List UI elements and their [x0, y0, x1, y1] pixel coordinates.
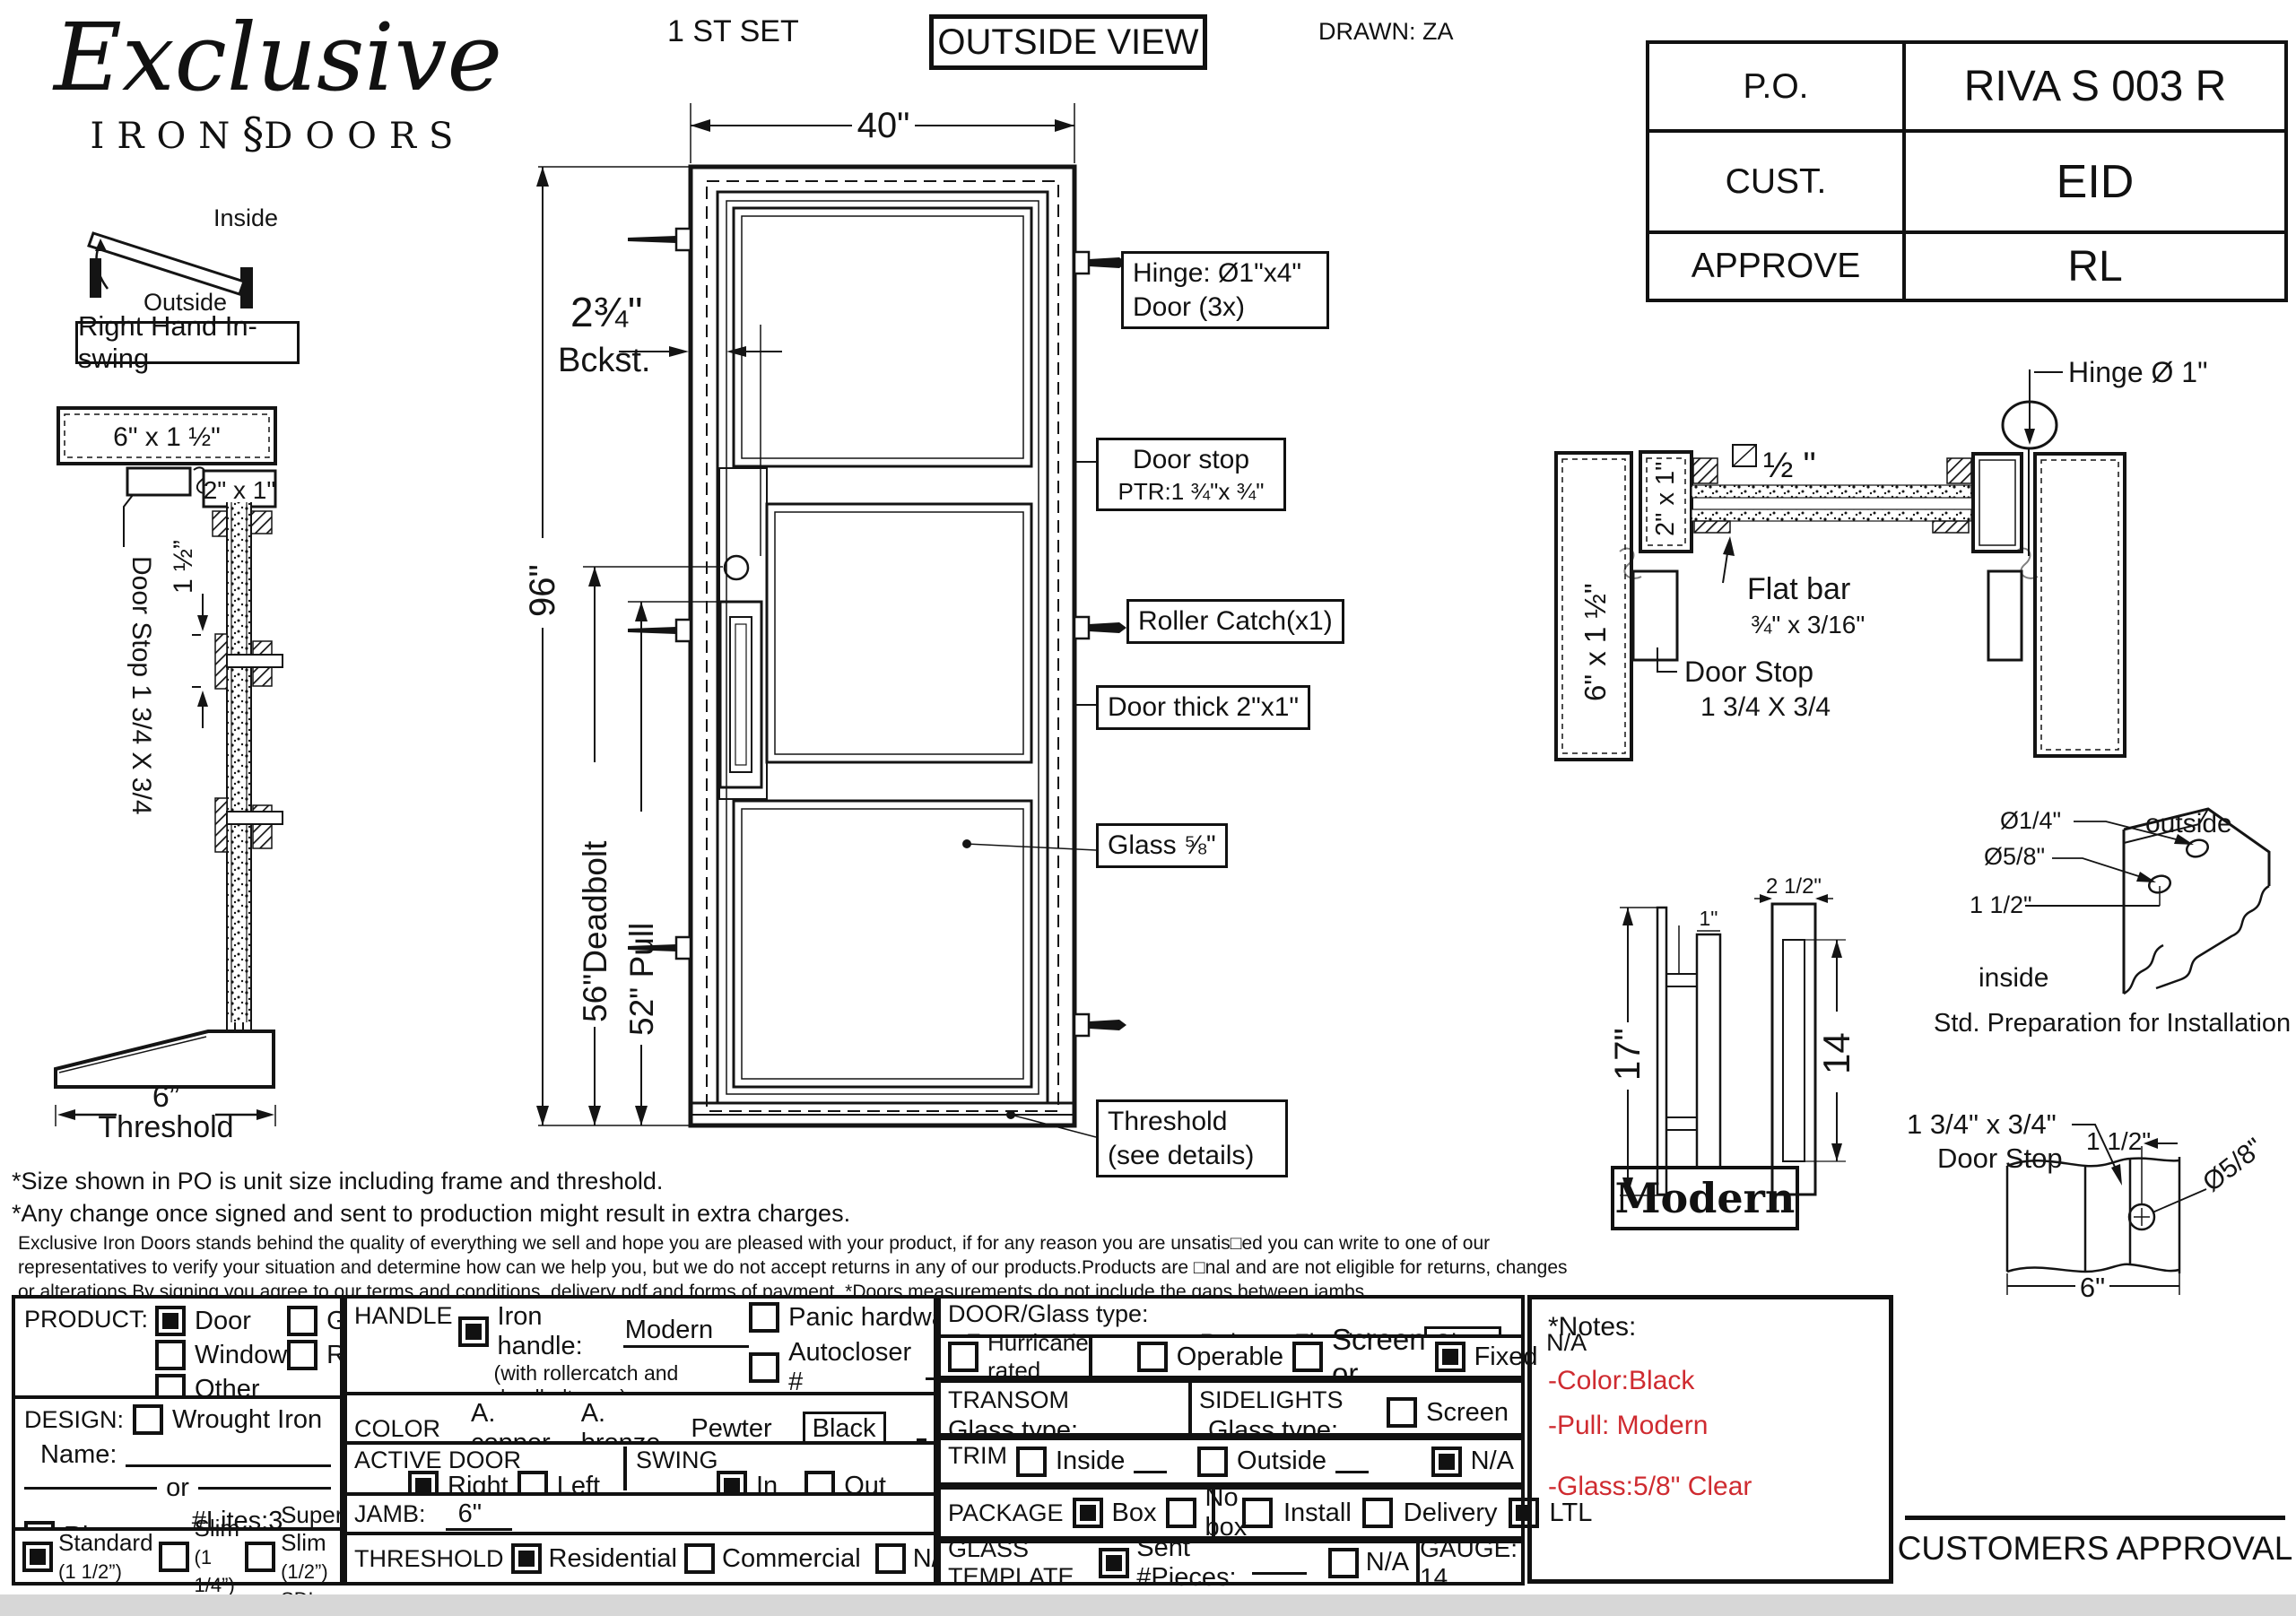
size-standard-label: Standard(1 1/2”) — [58, 1529, 153, 1585]
prep-dia2-label: Ø5/8" — [1984, 843, 2045, 870]
design-wrought-checkbox[interactable] — [133, 1404, 163, 1435]
handle-section: HANDLE Iron handle: Modern (with rollerc… — [344, 1295, 937, 1395]
design-name-label: Name: — [40, 1440, 117, 1470]
stop-width-dim: 6" — [2080, 1272, 2105, 1303]
prep-outside-label: outside — [2145, 809, 2232, 838]
glass-template-label: GLASS TEMPLATE — [948, 1535, 1091, 1591]
or-divider-left — [24, 1487, 157, 1490]
threshold-width-label: 6” — [152, 1080, 179, 1114]
disclaimer-paragraph: Exclusive Iron Doors stands behind the q… — [18, 1232, 1568, 1305]
note-color: -Color:Black — [1548, 1366, 1873, 1396]
jamb-value[interactable]: 6" — [446, 1499, 512, 1531]
logo-doors-text: DOORS — [264, 116, 465, 157]
handle-plate-width-dim: 2 1/2" — [1766, 874, 1822, 899]
swing-inside-label: Inside — [213, 204, 278, 231]
door-stop-rotated-label: Door Stop 1 3/4 X 3/4 — [126, 556, 156, 815]
prep-dia1-label: Ø1/4" — [2000, 807, 2061, 834]
handle-height-dim: 17" — [1608, 1028, 1648, 1081]
package-label: PACKAGE — [948, 1499, 1064, 1527]
hinge-pins — [1074, 252, 1126, 1036]
package-section: PACKAGE Box No box Install Delivery LTL — [937, 1486, 1525, 1540]
template-na-checkbox[interactable] — [1328, 1548, 1359, 1578]
transom-glass-blank[interactable] — [1078, 1414, 1177, 1438]
size-superslim-checkbox[interactable] — [245, 1542, 275, 1572]
prep-offset-label: 1 1/2" — [1970, 891, 2032, 918]
product-gate-checkbox[interactable] — [287, 1306, 317, 1336]
trim-na-label: N/A — [1471, 1447, 1514, 1476]
or-label: or — [166, 1473, 189, 1503]
template-sent-blank[interactable] — [1252, 1551, 1307, 1575]
logo-fleuron-icon: § — [242, 109, 264, 159]
or-divider-right — [198, 1487, 331, 1490]
active-door-swing-section: ACTIVE DOOR Right Left SWING In Out — [344, 1441, 937, 1496]
trim-section: TRIM Inside Outside N/A — [937, 1437, 1525, 1486]
trim-inside-checkbox[interactable] — [1016, 1447, 1047, 1477]
pull-height-dim: 52" Pull — [623, 923, 660, 1036]
package-install-label: Install — [1283, 1499, 1352, 1528]
door-width-dim: 40" — [857, 106, 910, 145]
trim-outside-checkbox[interactable] — [1197, 1447, 1228, 1477]
handle-iron-value[interactable]: Modern — [623, 1316, 749, 1348]
section-tube-label: 2" x 1" — [1651, 462, 1680, 536]
company-logo: Exclusive IRON§DOORS — [54, 9, 502, 159]
swing-diagram: Inside Outside — [89, 204, 278, 316]
cust-label: CUST. — [1649, 133, 1906, 230]
color-pewter-option[interactable]: Pewter — [691, 1414, 771, 1444]
page-bottom-edge — [0, 1594, 2296, 1616]
cross-section: 6" x 1 ½" 2" x 1" ½ " — [1556, 356, 2207, 760]
package-install-checkbox[interactable] — [1242, 1498, 1273, 1528]
logo-iron-text: IRON — [91, 116, 243, 157]
swing-caption: Right Hand In-swing — [75, 321, 300, 364]
template-sent-label: Sent #Pieces: — [1136, 1533, 1245, 1593]
threshold-commercial-checkbox[interactable] — [684, 1543, 715, 1574]
handle-slot-dim: 14 — [1815, 1032, 1857, 1074]
threshold-residential-checkbox[interactable] — [511, 1543, 542, 1574]
approve-label: APPROVE — [1649, 234, 1906, 299]
trim-inside-blank[interactable] — [1134, 1449, 1167, 1473]
frame-size-section: Standard(1 1/2”) Slim(1 1/4”) Super Slim… — [12, 1527, 344, 1586]
handle-autocloser-checkbox[interactable] — [749, 1352, 779, 1383]
color-other-blank[interactable] — [917, 1417, 926, 1441]
product-railing-checkbox[interactable] — [287, 1340, 317, 1370]
color-section: COLOR A. copper A. bronze Pewter Black — [344, 1392, 937, 1445]
sidelights-screen-label: Screen — [1426, 1398, 1509, 1428]
package-box-checkbox[interactable] — [1073, 1498, 1103, 1528]
threshold-caption: Threshold — [98, 1110, 233, 1144]
package-box-label: Box — [1112, 1499, 1157, 1528]
left-jamb-section: 6" x 1 ½" 2" x 1" 1 ½” — [56, 408, 283, 1144]
prep-inside-label: inside — [1979, 963, 2048, 993]
left-pins — [628, 229, 691, 959]
section-half-dim: ½ " — [1763, 446, 1816, 485]
backset-dim: 2¾" — [570, 289, 642, 335]
handle-detail: 17" 1" 2 1/2" 14 — [1608, 874, 1857, 1195]
logo-brand-text: Exclusive — [54, 9, 502, 107]
color-label: COLOR — [354, 1415, 440, 1443]
hurricane-label: Hurricane rated — [987, 1329, 1089, 1385]
threshold-residential-label: Residential — [549, 1544, 677, 1574]
table-row: APPROVE RL — [1649, 234, 2284, 299]
handle-iron-checkbox[interactable] — [458, 1316, 489, 1347]
deadbolt-height-dim: 56"Deadbolt — [577, 840, 613, 1022]
stop-dia-label: Ø5/8" — [2197, 1133, 2269, 1198]
product-label: PRODUCT: — [24, 1306, 148, 1404]
design-label: DESIGN: — [24, 1406, 124, 1434]
door-height-dim: 96" — [523, 564, 562, 617]
set-label: 1 ST SET — [667, 14, 799, 49]
prep-detail: Ø1/4" Ø5/8" 1 1/2" outside inside Std. P… — [1934, 807, 2291, 1038]
drawn-by-label: DRAWN: ZA — [1318, 18, 1454, 46]
threshold-na-checkbox[interactable] — [875, 1543, 906, 1574]
trim-outside-label: Outside — [1237, 1447, 1326, 1476]
package-delivery-label: Delivery — [1404, 1499, 1498, 1528]
door-thickness-callout: Door thick 2"x1" — [1096, 685, 1310, 730]
size-slim-label: Slim(1 1/4”) — [195, 1515, 240, 1598]
fixed-checkbox[interactable] — [1435, 1342, 1465, 1372]
outside-view-box: OUTSIDE VIEW — [929, 14, 1207, 70]
section-hinge-label: Hinge Ø 1" — [2068, 356, 2207, 388]
product-door-label: Door — [195, 1307, 251, 1336]
template-na-label: N/A — [1366, 1548, 1409, 1577]
stop-name-label: Door Stop — [1937, 1142, 2063, 1174]
threshold-callout: Threshold(see details) — [1096, 1099, 1288, 1177]
sidelights-screen-checkbox[interactable] — [1387, 1397, 1417, 1428]
package-nobox-checkbox[interactable] — [1166, 1498, 1196, 1528]
template-sent-checkbox[interactable] — [1099, 1548, 1129, 1578]
size-slim-checkbox[interactable] — [159, 1542, 189, 1572]
product-window-label: Window — [195, 1341, 287, 1370]
stop-size-label: 1 3/4" x 3/4" — [1907, 1108, 2057, 1140]
customer-signature-line[interactable] — [1905, 1516, 2285, 1520]
cust-value: EID — [1906, 155, 2284, 209]
stop-offset-dim: 1 1/2" — [2086, 1127, 2151, 1155]
door-stop-detail: 1 3/4" x 3/4" Door Stop 1 1/2" Ø5/8" 6" — [1907, 1108, 2269, 1303]
design-name-blank[interactable] — [126, 1443, 331, 1467]
threshold-commercial-label: Commercial — [722, 1544, 861, 1574]
jamb-size-label: 6" x 1 ½" — [113, 422, 221, 452]
hurricane-checkbox[interactable] — [948, 1342, 978, 1372]
flat-bar-label: Flat bar — [1747, 572, 1850, 606]
handle-autocloser-label: Autocloser # — [788, 1338, 917, 1397]
tube-size-label: 2" x 1" — [204, 476, 276, 504]
door-elevation: 40" 96" 56"Deadbolt 52" Pull 2¾" — [523, 103, 1126, 1137]
glass-callout: Glass ⅝" — [1096, 823, 1228, 868]
prep-caption: Std. Preparation for Installation — [1934, 1009, 2291, 1038]
section-stop-size: 1 3/4 X 3/4 — [1700, 692, 1831, 722]
handle-bar-width-dim: 1" — [1700, 907, 1718, 930]
hinge-callout: Hinge: Ø1"x4"Door (3x) — [1121, 251, 1329, 329]
po-info-table: P.O. RIVA S 003 R CUST. EID APPROVE RL — [1646, 40, 2288, 302]
size-standard-checkbox[interactable] — [22, 1542, 53, 1572]
trim-outside-blank[interactable] — [1335, 1449, 1369, 1473]
product-window-checkbox[interactable] — [155, 1340, 186, 1370]
table-row: P.O. RIVA S 003 R — [1649, 44, 2284, 133]
product-section: PRODUCT: Door Gate Window Railling Other — [12, 1295, 344, 1399]
product-door-checkbox[interactable] — [155, 1306, 186, 1336]
handle-panic-checkbox[interactable] — [749, 1302, 779, 1333]
approve-value: RL — [1906, 242, 2284, 291]
po-value: RIVA S 003 R — [1906, 62, 2284, 111]
glass-type-label: DOOR/Glass type: — [948, 1300, 1514, 1328]
transom-label: TRANSOM — [948, 1386, 1181, 1414]
table-row: CUST. EID — [1649, 133, 2284, 234]
disclaimer-line-2: *Any change once signed and sent to prod… — [12, 1200, 850, 1228]
operable-checkbox[interactable] — [1137, 1342, 1168, 1372]
jamb-section: JAMB: 6" — [344, 1492, 937, 1535]
section-stop-label: Door Stop — [1684, 656, 1813, 688]
roller-catch-callout: Roller Catch(x1) — [1126, 599, 1344, 644]
note-pull: -Pull: Modern — [1548, 1411, 1873, 1441]
glass-template-section: GLASS TEMPLATE Sent #Pieces: N/A GAUGE: … — [937, 1540, 1525, 1586]
handle-iron-label: Iron handle: — [498, 1302, 614, 1361]
disclaimer-line-1: *Size shown in PO is unit size including… — [12, 1168, 663, 1195]
note-glass: -Glass:5/8" Clear — [1548, 1472, 1873, 1502]
handle-model-label: Modern — [1611, 1166, 1799, 1230]
backset-label: Bckst. — [558, 342, 650, 379]
door-stop-callout: Door stopPTR:1 ¾"x ¾" — [1096, 438, 1286, 511]
gauge-label: GAUGE: 14 — [1416, 1543, 1521, 1582]
customers-approval-label: CUSTOMERS APPROVAL — [1896, 1530, 2294, 1568]
trim-inside-label: Inside — [1056, 1447, 1125, 1476]
package-delivery-checkbox[interactable] — [1362, 1498, 1393, 1528]
drawing-sheet: Inside Outside 6" x 1 ½" 2" x 1" — [0, 0, 2296, 1616]
po-label: P.O. — [1649, 44, 1906, 129]
design-wrought-label: Wrought Iron — [172, 1405, 322, 1435]
jamb-label: JAMB: — [354, 1500, 426, 1527]
flat-bar-size: ¾" x 3/16" — [1751, 611, 1865, 639]
screen-or-checkbox[interactable] — [1292, 1342, 1323, 1372]
operable-label: Operable — [1177, 1342, 1283, 1372]
side-notes-box: *Notes: -Color:Black -Pull: Modern -Glas… — [1527, 1295, 1893, 1584]
notes-title: *Notes: — [1548, 1312, 1873, 1342]
trim-na-checkbox[interactable] — [1431, 1447, 1462, 1477]
threshold-section: THRESHOLD Residential Commercial N/A — [344, 1532, 937, 1586]
section-jamb-label: 6" x 1 ½" — [1578, 583, 1612, 701]
gap-dim-label: 1 ½” — [169, 540, 198, 594]
hurricane-row: Hurricane rated Operable Screen or Fixed — [937, 1334, 1525, 1379]
threshold-label: THRESHOLD — [354, 1545, 504, 1573]
transom-sidelights-row: TRANSOM Glass type: SIDELIGHTS Glass typ… — [937, 1379, 1525, 1437]
trim-label: TRIM — [948, 1442, 1007, 1470]
